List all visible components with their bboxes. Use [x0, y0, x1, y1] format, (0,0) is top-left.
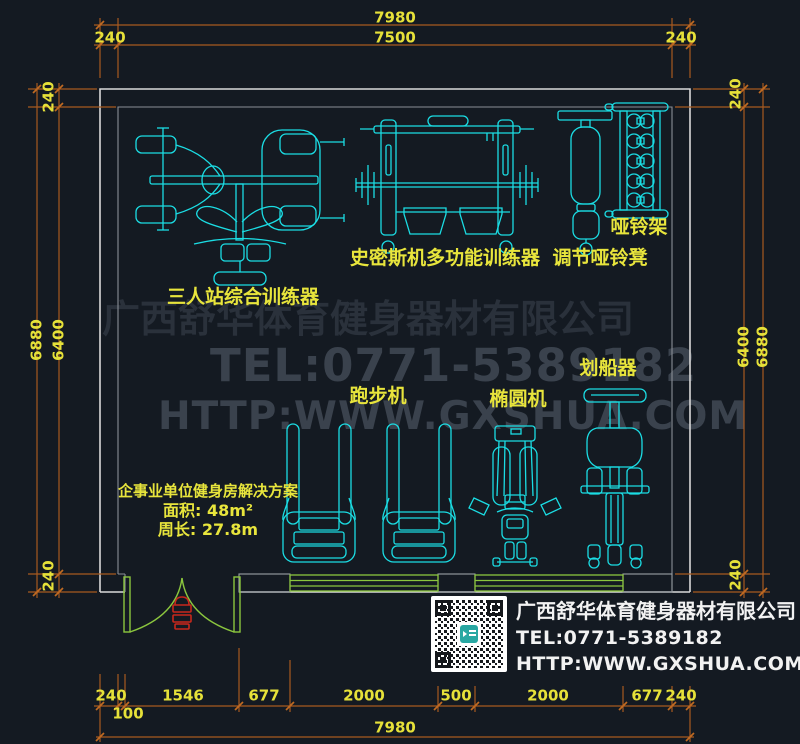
equipment-elliptical	[469, 426, 561, 566]
label-rower: 划船器	[579, 359, 636, 378]
dim-left-inner: 6400	[52, 319, 67, 361]
solution-area: 面积: 48m²	[118, 501, 298, 520]
dim-bottom-seg-0: 240	[95, 689, 126, 704]
door-symbol	[173, 597, 191, 629]
equipment-treadmill-2	[383, 424, 455, 562]
solution-title: 企事业单位健身房解决方案	[118, 481, 298, 501]
dim-bottom-seg-3: 2000	[343, 689, 385, 704]
cad-floor-plan-canvas: 广西舒华体育健身器材有限公司 TEL:0771-5389182 HTTP:WWW…	[0, 0, 800, 744]
dim-bottom-total: 7980	[374, 721, 416, 736]
equipment-rower	[581, 389, 649, 568]
equipment-multi-station	[136, 128, 344, 285]
dim-bottom-jamb: 100	[112, 707, 143, 722]
dim-bottom-seg-5: 2000	[527, 689, 569, 704]
window-strip-2	[475, 575, 623, 591]
equipment-smith-machine	[356, 116, 538, 253]
window-strip-1	[290, 575, 438, 591]
label-multi-station: 三人站综合训练器	[167, 288, 319, 307]
dim-left-bottom-offset: 240	[42, 560, 57, 591]
panel-company: 广西舒华体育健身器材有限公司	[516, 601, 796, 621]
label-smith-machine: 史密斯机多功能训练器	[350, 249, 540, 268]
dim-left-outer: 6880	[30, 319, 45, 361]
dumbbells	[627, 114, 654, 207]
dim-bottom-seg-1: 1546	[162, 689, 204, 704]
label-elliptical: 椭圆机	[489, 390, 546, 409]
dim-bottom-seg-6: 677	[631, 689, 662, 704]
dim-right-bottom-offset: 240	[729, 559, 744, 590]
dim-bottom-seg-4: 500	[440, 689, 471, 704]
window-strips	[290, 575, 623, 591]
panel-tel: TEL:0771-5389182	[516, 629, 723, 648]
panel-url: HTTP:WWW.GXSHUA.COM	[516, 655, 800, 674]
qr-center-logo	[457, 622, 481, 646]
label-dumbbell-rack: 哑铃架	[610, 218, 667, 237]
solution-perimeter: 周长: 27.8m	[118, 520, 298, 539]
equipment-dumbbell-rack	[605, 103, 668, 218]
dim-top-right-offset: 240	[665, 31, 696, 46]
solution-block: 企事业单位健身房解决方案 面积: 48m² 周长: 27.8m	[118, 481, 298, 539]
dim-top-left-offset: 240	[94, 31, 125, 46]
label-dumbbell-bench: 调节哑铃凳	[552, 249, 647, 268]
dim-top-inner: 7500	[374, 31, 416, 46]
dim-right-top-offset: 240	[729, 78, 744, 109]
dim-bottom-seg-2: 677	[248, 689, 279, 704]
dim-left-top-offset: 240	[42, 81, 57, 112]
dim-right-outer: 6880	[756, 326, 771, 368]
equipment-dumbbell-bench	[558, 111, 612, 255]
dim-right-inner: 6400	[737, 326, 752, 368]
label-treadmill: 跑步机	[349, 387, 406, 406]
dim-top-total: 7980	[374, 11, 416, 26]
qr-code	[431, 596, 507, 672]
dim-bottom-seg-7: 240	[665, 689, 696, 704]
